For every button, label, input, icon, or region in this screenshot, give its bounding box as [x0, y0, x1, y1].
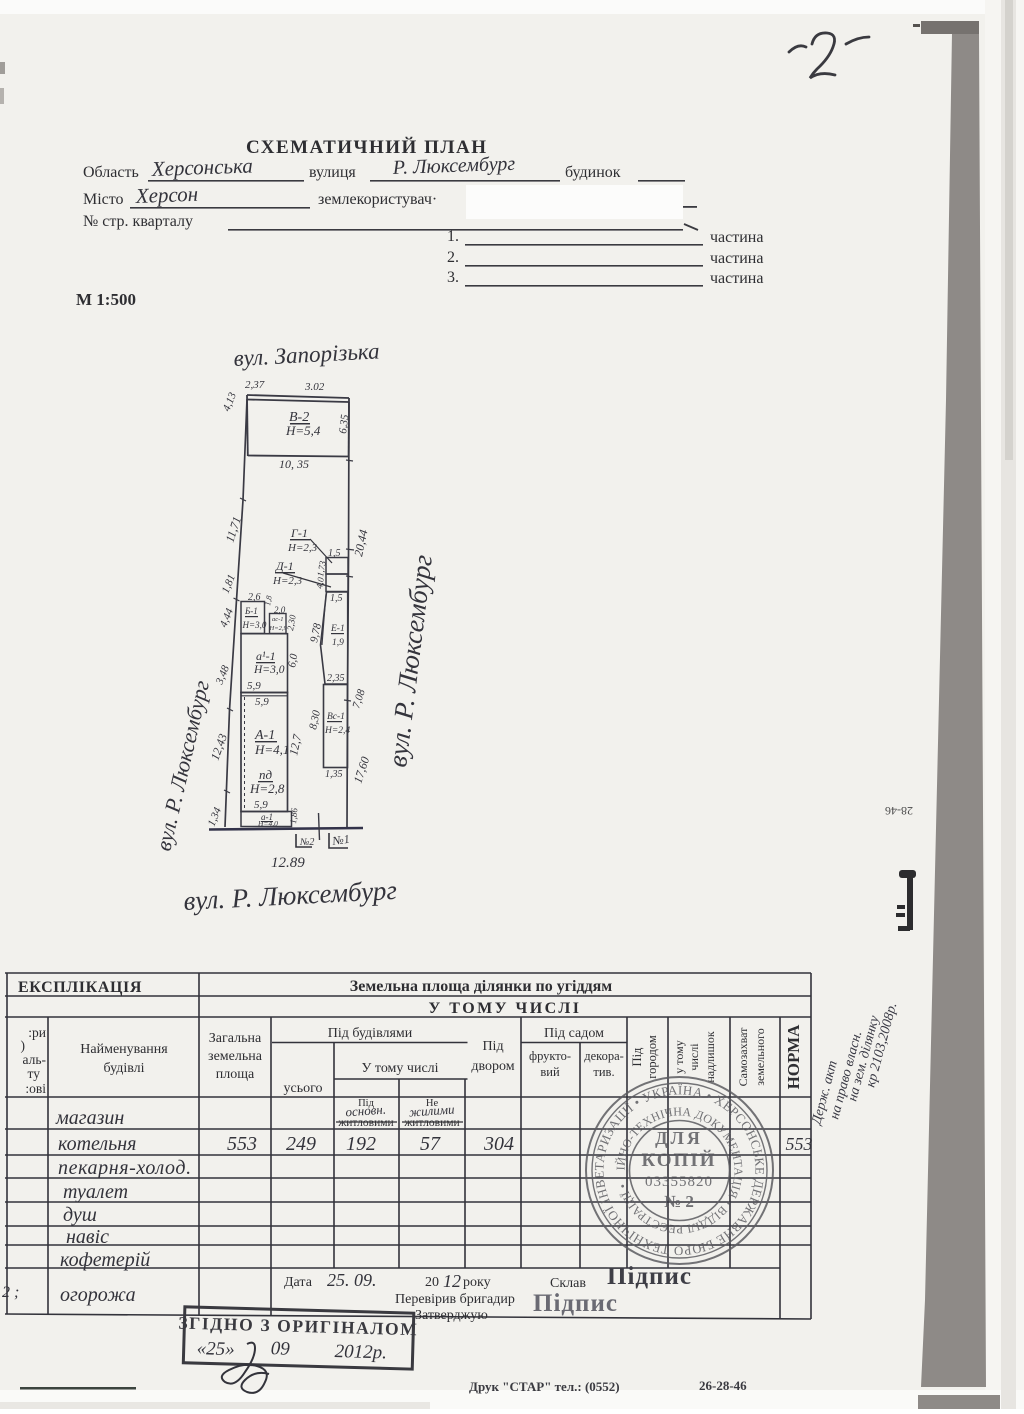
svg-text:1,5: 1,5: [330, 593, 343, 604]
svg-text:1.: 1.: [447, 228, 459, 245]
svg-text:553: 553: [227, 1133, 257, 1155]
svg-text:Н=4,1: Н=4,1: [254, 742, 289, 757]
svg-text:2012р.: 2012р.: [334, 1341, 387, 1363]
svg-text:вий: вий: [540, 1065, 560, 1079]
svg-text:12.89: 12.89: [271, 855, 305, 871]
svg-text:10, 35: 10, 35: [279, 457, 309, 471]
svg-text:у тому: у тому: [672, 1040, 686, 1073]
svg-text:Підпис: Підпис: [607, 1263, 692, 1290]
svg-text:аль-: аль-: [23, 1052, 47, 1067]
svg-text:2.: 2.: [447, 249, 459, 266]
svg-text:09: 09: [270, 1338, 290, 1360]
svg-text:3.02: 3.02: [304, 381, 325, 393]
svg-text:№ стр. кварталу: № стр. кварталу: [83, 213, 193, 230]
svg-text:Під садом: Під садом: [544, 1026, 604, 1041]
svg-text:1,8: 1,8: [263, 595, 274, 606]
svg-text:року: року: [463, 1275, 491, 1290]
svg-text:будівлі: будівлі: [103, 1061, 144, 1076]
svg-text:249: 249: [286, 1133, 316, 1155]
svg-text:№1: №1: [330, 832, 350, 848]
svg-text:ас-1: ас-1: [272, 616, 284, 623]
svg-text::ові: :ові: [25, 1081, 46, 1096]
svg-text:2 ;: 2 ;: [2, 1284, 19, 1301]
svg-text:Херсонська: Херсонська: [150, 153, 253, 181]
svg-text:землекористувач·: землекористувач·: [318, 191, 437, 208]
svg-text:КОПІЙ: КОПІЙ: [641, 1149, 716, 1171]
svg-text:Під будівлями: Під будівлями: [328, 1026, 413, 1041]
svg-text:Херсон: Херсон: [134, 182, 198, 208]
svg-text:Н=3,0: Н=3,0: [253, 664, 285, 676]
svg-text:огорожа: огорожа: [60, 1284, 136, 1306]
svg-text:НОРМА: НОРМА: [784, 1024, 803, 1090]
svg-text:площа: площа: [216, 1067, 255, 1082]
svg-text:земельна: земельна: [208, 1049, 263, 1064]
svg-text:Загальна: Загальна: [209, 1031, 262, 1046]
svg-text:Затверджую: Затверджую: [415, 1308, 488, 1323]
svg-text:Склав: Склав: [550, 1276, 586, 1291]
svg-text:26-28-46: 26-28-46: [699, 1378, 747, 1393]
svg-text:Е-1: Е-1: [330, 624, 345, 634]
svg-text:553: 553: [786, 1134, 813, 1154]
svg-text:Б-1: Б-1: [244, 606, 258, 616]
svg-text:фрукто-: фрукто-: [529, 1049, 571, 1063]
svg-text:12: 12: [443, 1271, 461, 1291]
svg-text:Н=2,3: Н=2,3: [287, 542, 318, 554]
svg-text:Область: Область: [83, 164, 139, 181]
svg-text:М 1:500: М 1:500: [76, 290, 136, 309]
svg-text:5,9: 5,9: [254, 799, 268, 811]
svg-text:1,9: 1,9: [332, 638, 344, 648]
svg-text:пекарня-холод.: пекарня-холод.: [58, 1157, 192, 1179]
svg-text:жилими: жилими: [408, 1101, 455, 1119]
svg-text:Підпис: Підпис: [533, 1290, 618, 1317]
svg-text:пд: пд: [259, 767, 273, 782]
svg-text:числі: числі: [687, 1043, 701, 1071]
svg-text:городом: городом: [645, 1035, 659, 1079]
svg-text:душ: душ: [63, 1204, 97, 1226]
svg-text:Самозахват: Самозахват: [736, 1027, 750, 1087]
svg-text:1,35: 1,35: [325, 769, 343, 780]
svg-text:Н=3,0: Н=3,0: [242, 620, 267, 630]
svg-text:№ 2: № 2: [664, 1192, 694, 1211]
svg-text:3.: 3.: [447, 269, 459, 286]
svg-text:котельня: котельня: [58, 1133, 136, 1155]
svg-text:Н=5,4: Н=5,4: [285, 423, 321, 438]
svg-text:а¹-1: а¹-1: [256, 649, 276, 663]
svg-text:туалет: туалет: [63, 1181, 128, 1203]
svg-text:Друк "СТАР" тел.: (0552): Друк "СТАР" тел.: (0552): [469, 1379, 620, 1394]
svg-text:03355820: 03355820: [645, 1174, 713, 1190]
svg-text:Вс-1: Вс-1: [327, 712, 345, 722]
svg-text:Н=2,8: Н=2,8: [249, 781, 285, 796]
svg-text:магазин: магазин: [55, 1107, 124, 1129]
svg-text:надлишок: надлишок: [703, 1031, 717, 1083]
svg-text:Н=2,4: Н=2,4: [324, 726, 350, 736]
svg-text:частина: частина: [710, 250, 763, 267]
svg-text:): ): [21, 1038, 26, 1053]
svg-text:Р. Люксембург: Р. Люксембург: [391, 153, 515, 179]
svg-text:Під: Під: [482, 1039, 503, 1054]
svg-text:Д-1: Д-1: [275, 559, 294, 573]
svg-text:304: 304: [483, 1133, 514, 1155]
svg-text:усього: усього: [284, 1081, 323, 1096]
svg-text:будинок: будинок: [565, 164, 621, 181]
svg-text:1,86: 1,86: [288, 807, 299, 824]
svg-text::ри: :ри: [28, 1025, 46, 1040]
svg-text:57: 57: [420, 1133, 441, 1155]
svg-text:25. 09.: 25. 09.: [327, 1270, 377, 1290]
svg-text:ДЛЯ: ДЛЯ: [655, 1128, 703, 1148]
svg-text:частина: частина: [710, 229, 763, 246]
svg-text:20: 20: [425, 1275, 439, 1290]
svg-text:У тому числі: У тому числі: [361, 1061, 438, 1076]
svg-text:частина: частина: [710, 270, 763, 287]
svg-text:ту: ту: [28, 1066, 41, 1081]
svg-text:тив.: тив.: [593, 1065, 614, 1079]
svg-text:Найменування: Найменування: [80, 1042, 168, 1057]
svg-text:4,0: 4,0: [314, 576, 326, 589]
svg-text:Перевірив бригадир: Перевірив бригадир: [395, 1292, 515, 1307]
svg-text:2,35: 2,35: [327, 673, 345, 684]
svg-text:28-46: 28-46: [885, 804, 913, 818]
svg-text:№2: №2: [299, 837, 314, 848]
svg-text:Н=4,0: Н=4,0: [257, 819, 278, 828]
svg-text:Місто: Місто: [83, 191, 124, 208]
svg-text:Дата: Дата: [284, 1275, 313, 1290]
svg-text:У ТОМУ ЧИСЛІ: У ТОМУ ЧИСЛІ: [429, 1000, 582, 1017]
svg-text:6,0: 6,0: [286, 652, 300, 668]
svg-text:5,9: 5,9: [247, 680, 261, 692]
svg-text:«25»: «25»: [196, 1338, 235, 1360]
svg-text:навіс: навіс: [66, 1226, 109, 1248]
svg-text:двором: двором: [471, 1059, 514, 1074]
svg-text:2,37: 2,37: [245, 379, 265, 391]
svg-text:Земельна площа ділянки по угід: Земельна площа ділянки по угіддям: [350, 978, 613, 995]
svg-text:кофетерій: кофетерій: [60, 1249, 150, 1271]
svg-text:декора-: декора-: [584, 1049, 624, 1063]
svg-text:5,9: 5,9: [255, 696, 269, 708]
svg-text:ЕКСПЛІКАЦІЯ: ЕКСПЛІКАЦІЯ: [18, 979, 142, 996]
svg-text:А-1: А-1: [254, 728, 275, 743]
svg-text:основн.: основн.: [345, 1102, 387, 1120]
svg-text:192: 192: [346, 1133, 376, 1155]
svg-text:Під: Під: [630, 1047, 644, 1067]
svg-text:Г-1: Г-1: [290, 526, 308, 540]
svg-text:вулиця: вулиця: [309, 164, 356, 181]
svg-text:земельного: земельного: [753, 1028, 767, 1086]
